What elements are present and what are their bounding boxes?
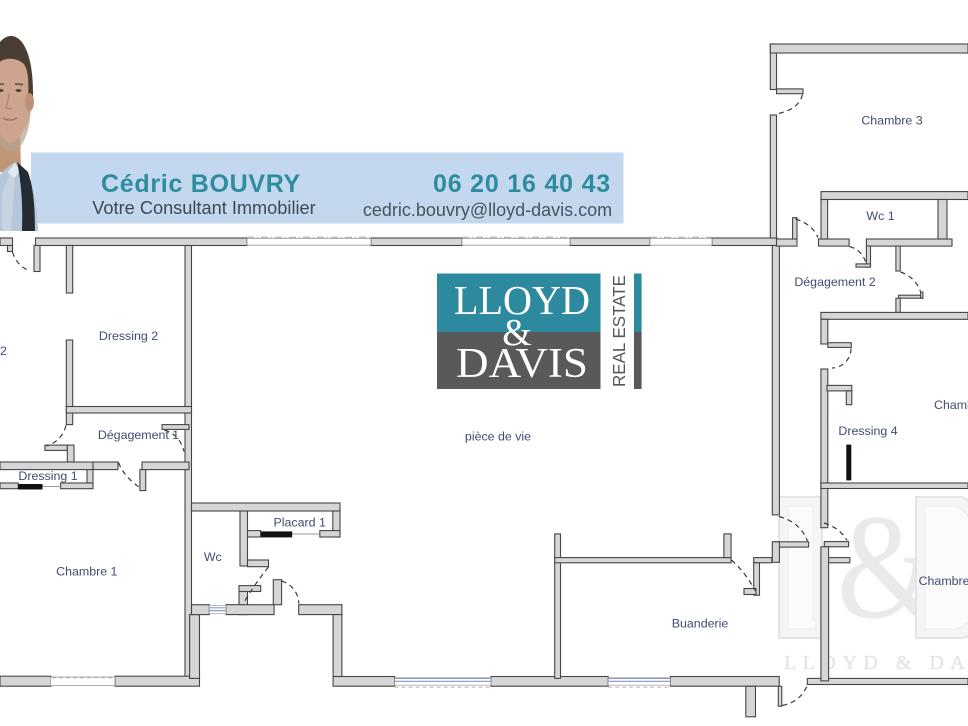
- svg-text:Chambre 1: Chambre 1: [56, 565, 117, 579]
- svg-text:cedric.bouvry@lloyd-davis.com: cedric.bouvry@lloyd-davis.com: [363, 200, 612, 220]
- svg-text:Placard 1: Placard 1: [274, 516, 326, 530]
- svg-text:Chambre 2: Chambre 2: [934, 398, 968, 412]
- svg-text:Dégagement 1: Dégagement 1: [98, 428, 179, 442]
- svg-text:Chambre 3: Chambre 3: [861, 114, 922, 128]
- svg-text:Cédric BOUVRY: Cédric BOUVRY: [101, 170, 301, 198]
- svg-text:Buanderie: Buanderie: [672, 617, 729, 631]
- svg-text:Chambre 5: Chambre 5: [919, 574, 968, 588]
- svg-text:Dressing 1: Dressing 1: [18, 469, 77, 483]
- svg-text:DAVIS: DAVIS: [456, 341, 588, 387]
- svg-text:Dégagement 2: Dégagement 2: [794, 275, 875, 289]
- svg-text:06 20 16 40 43: 06 20 16 40 43: [433, 170, 611, 198]
- svg-text:Dressing 2: Dressing 2: [99, 329, 158, 343]
- svg-text:Dressing 4: Dressing 4: [838, 424, 897, 438]
- svg-text:Votre Consultant Immobilier: Votre Consultant Immobilier: [92, 198, 315, 218]
- svg-text:2: 2: [0, 344, 7, 358]
- svg-text:LLOYD & DAVIS: LLOYD & DAVIS: [784, 652, 968, 674]
- svg-text:Wc 1: Wc 1: [866, 209, 894, 223]
- svg-text:pièce de vie: pièce de vie: [465, 430, 531, 444]
- svg-text:REAL ESTATE: REAL ESTATE: [609, 275, 629, 387]
- svg-text:Wc: Wc: [204, 550, 222, 564]
